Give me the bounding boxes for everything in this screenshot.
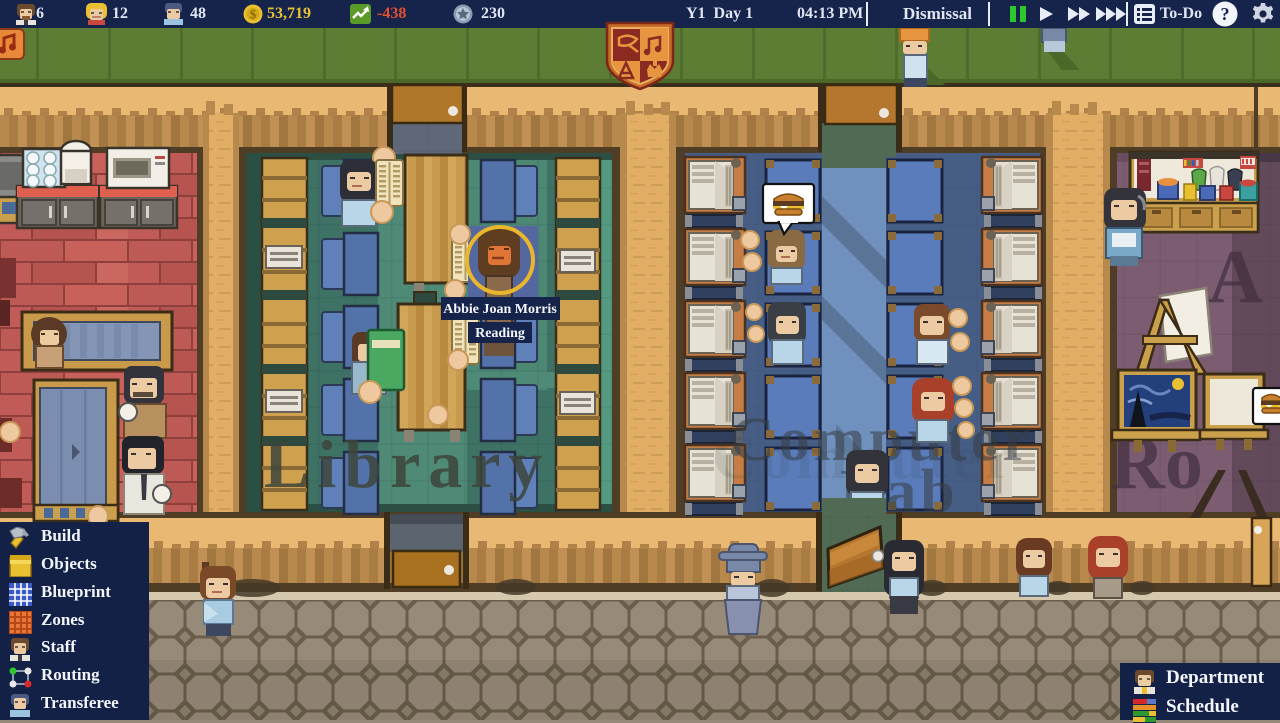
svg-text:Abbie Joan Morris: Abbie Joan Morris [443,302,557,317]
svg-text:A: A [1208,235,1263,319]
svg-text:Reading: Reading [475,326,525,341]
svg-text:Library: Library [264,426,550,502]
